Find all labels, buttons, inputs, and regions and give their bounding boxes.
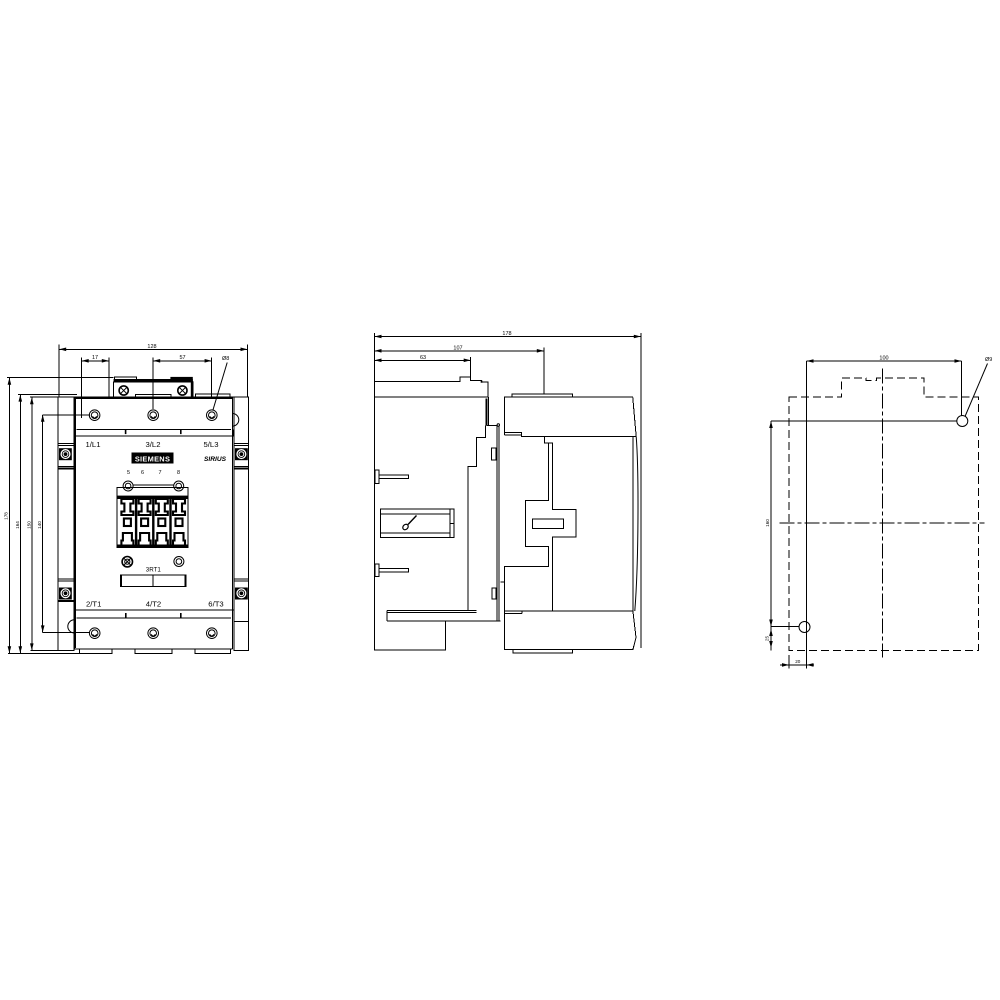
svg-text:63: 63 [420, 355, 426, 361]
svg-text:7: 7 [158, 470, 161, 476]
svg-text:8: 8 [177, 470, 180, 476]
svg-text:25: 25 [765, 636, 770, 642]
svg-text:Ø8: Ø8 [222, 356, 229, 362]
svg-text:3/L2: 3/L2 [146, 440, 161, 449]
svg-text:4/T2: 4/T2 [146, 600, 161, 609]
svg-text:178: 178 [502, 331, 511, 337]
svg-text:6: 6 [141, 470, 144, 476]
svg-text:150: 150 [26, 521, 31, 529]
svg-text:107: 107 [453, 346, 462, 352]
svg-text:57: 57 [179, 355, 185, 361]
svg-text:SIRIUS: SIRIUS [204, 456, 227, 463]
svg-text:100: 100 [879, 356, 888, 362]
svg-text:160: 160 [765, 519, 770, 527]
svg-text:3RT1: 3RT1 [146, 567, 162, 574]
svg-text:140: 140 [37, 521, 42, 529]
svg-text:5/L3: 5/L3 [204, 440, 219, 449]
svg-text:5: 5 [127, 470, 130, 476]
svg-text:20: 20 [795, 659, 801, 664]
svg-text:17: 17 [92, 355, 98, 361]
svg-text:178: 178 [4, 512, 9, 520]
svg-text:6/T3: 6/T3 [208, 600, 223, 609]
svg-text:2/T1: 2/T1 [86, 600, 101, 609]
svg-text:1/L1: 1/L1 [86, 440, 101, 449]
svg-text:Ø9: Ø9 [985, 357, 992, 363]
svg-text:SIEMENS: SIEMENS [135, 454, 170, 463]
svg-text:128: 128 [147, 344, 156, 350]
svg-text:164: 164 [15, 521, 20, 529]
